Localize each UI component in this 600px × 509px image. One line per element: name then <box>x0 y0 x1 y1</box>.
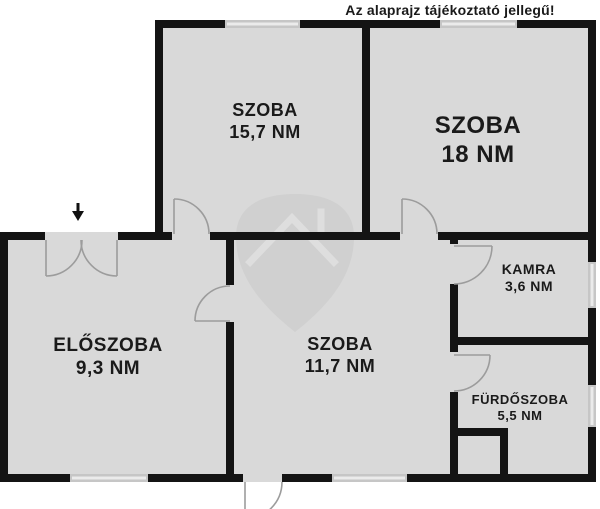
window-icon <box>440 20 517 28</box>
room-name: SZOBA <box>240 334 440 356</box>
room-name: SZOBA <box>165 100 365 122</box>
room-area: 15,7 NM <box>165 122 365 144</box>
room-label-furdoszoba: FÜRDŐSZOBA 5,5 NM <box>445 392 595 423</box>
room-label-szoba-117: SZOBA 11,7 NM <box>240 334 440 377</box>
room-name: ELŐSZOBA <box>8 335 208 358</box>
window-icon <box>225 20 300 28</box>
disclaimer-title: Az alaprajz tájékoztató jellegű! <box>290 2 600 19</box>
room-label-szoba-157: SZOBA 15,7 NM <box>165 100 365 143</box>
room-area: 9,3 NM <box>8 358 208 381</box>
room-label-szoba-18: SZOBA 18 NM <box>378 112 578 170</box>
room-name: KAMRA <box>459 261 599 278</box>
room-name: FÜRDŐSZOBA <box>445 392 595 408</box>
room-label-eloszoba: ELŐSZOBA 9,3 NM <box>8 335 208 381</box>
room-area: 18 NM <box>378 141 578 170</box>
window-icon <box>332 474 407 482</box>
window-icon <box>70 474 148 482</box>
floor-plan-drawing <box>0 0 600 509</box>
room-area: 5,5 NM <box>445 408 595 424</box>
floor-plan: Az alaprajz tájékoztató jellegű! SZOBA 1… <box>0 0 600 509</box>
entrance-arrow-icon <box>72 203 84 221</box>
room-area: 11,7 NM <box>240 356 440 378</box>
room-label-kamra: KAMRA 3,6 NM <box>459 261 599 295</box>
door-icon <box>245 482 282 509</box>
room-name: SZOBA <box>378 112 578 141</box>
room-area: 3,6 NM <box>459 278 599 295</box>
